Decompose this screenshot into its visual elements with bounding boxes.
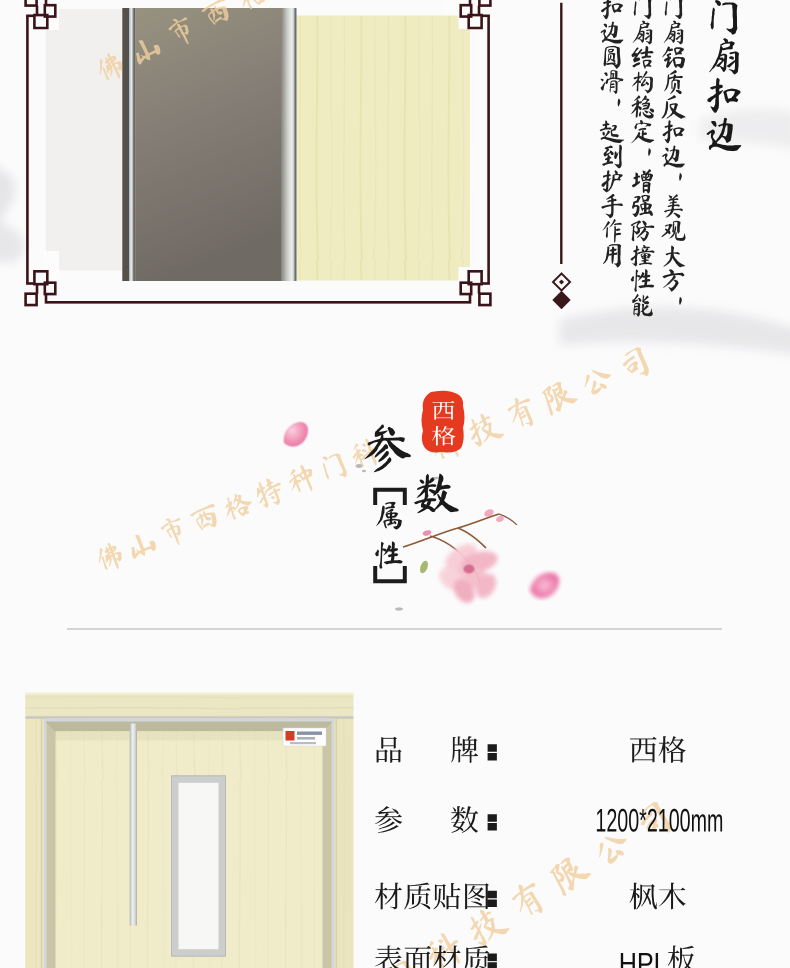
svg-text:HPL: HPL xyxy=(619,946,668,968)
svg-text:1200*2100mm: 1200*2100mm xyxy=(595,803,723,839)
